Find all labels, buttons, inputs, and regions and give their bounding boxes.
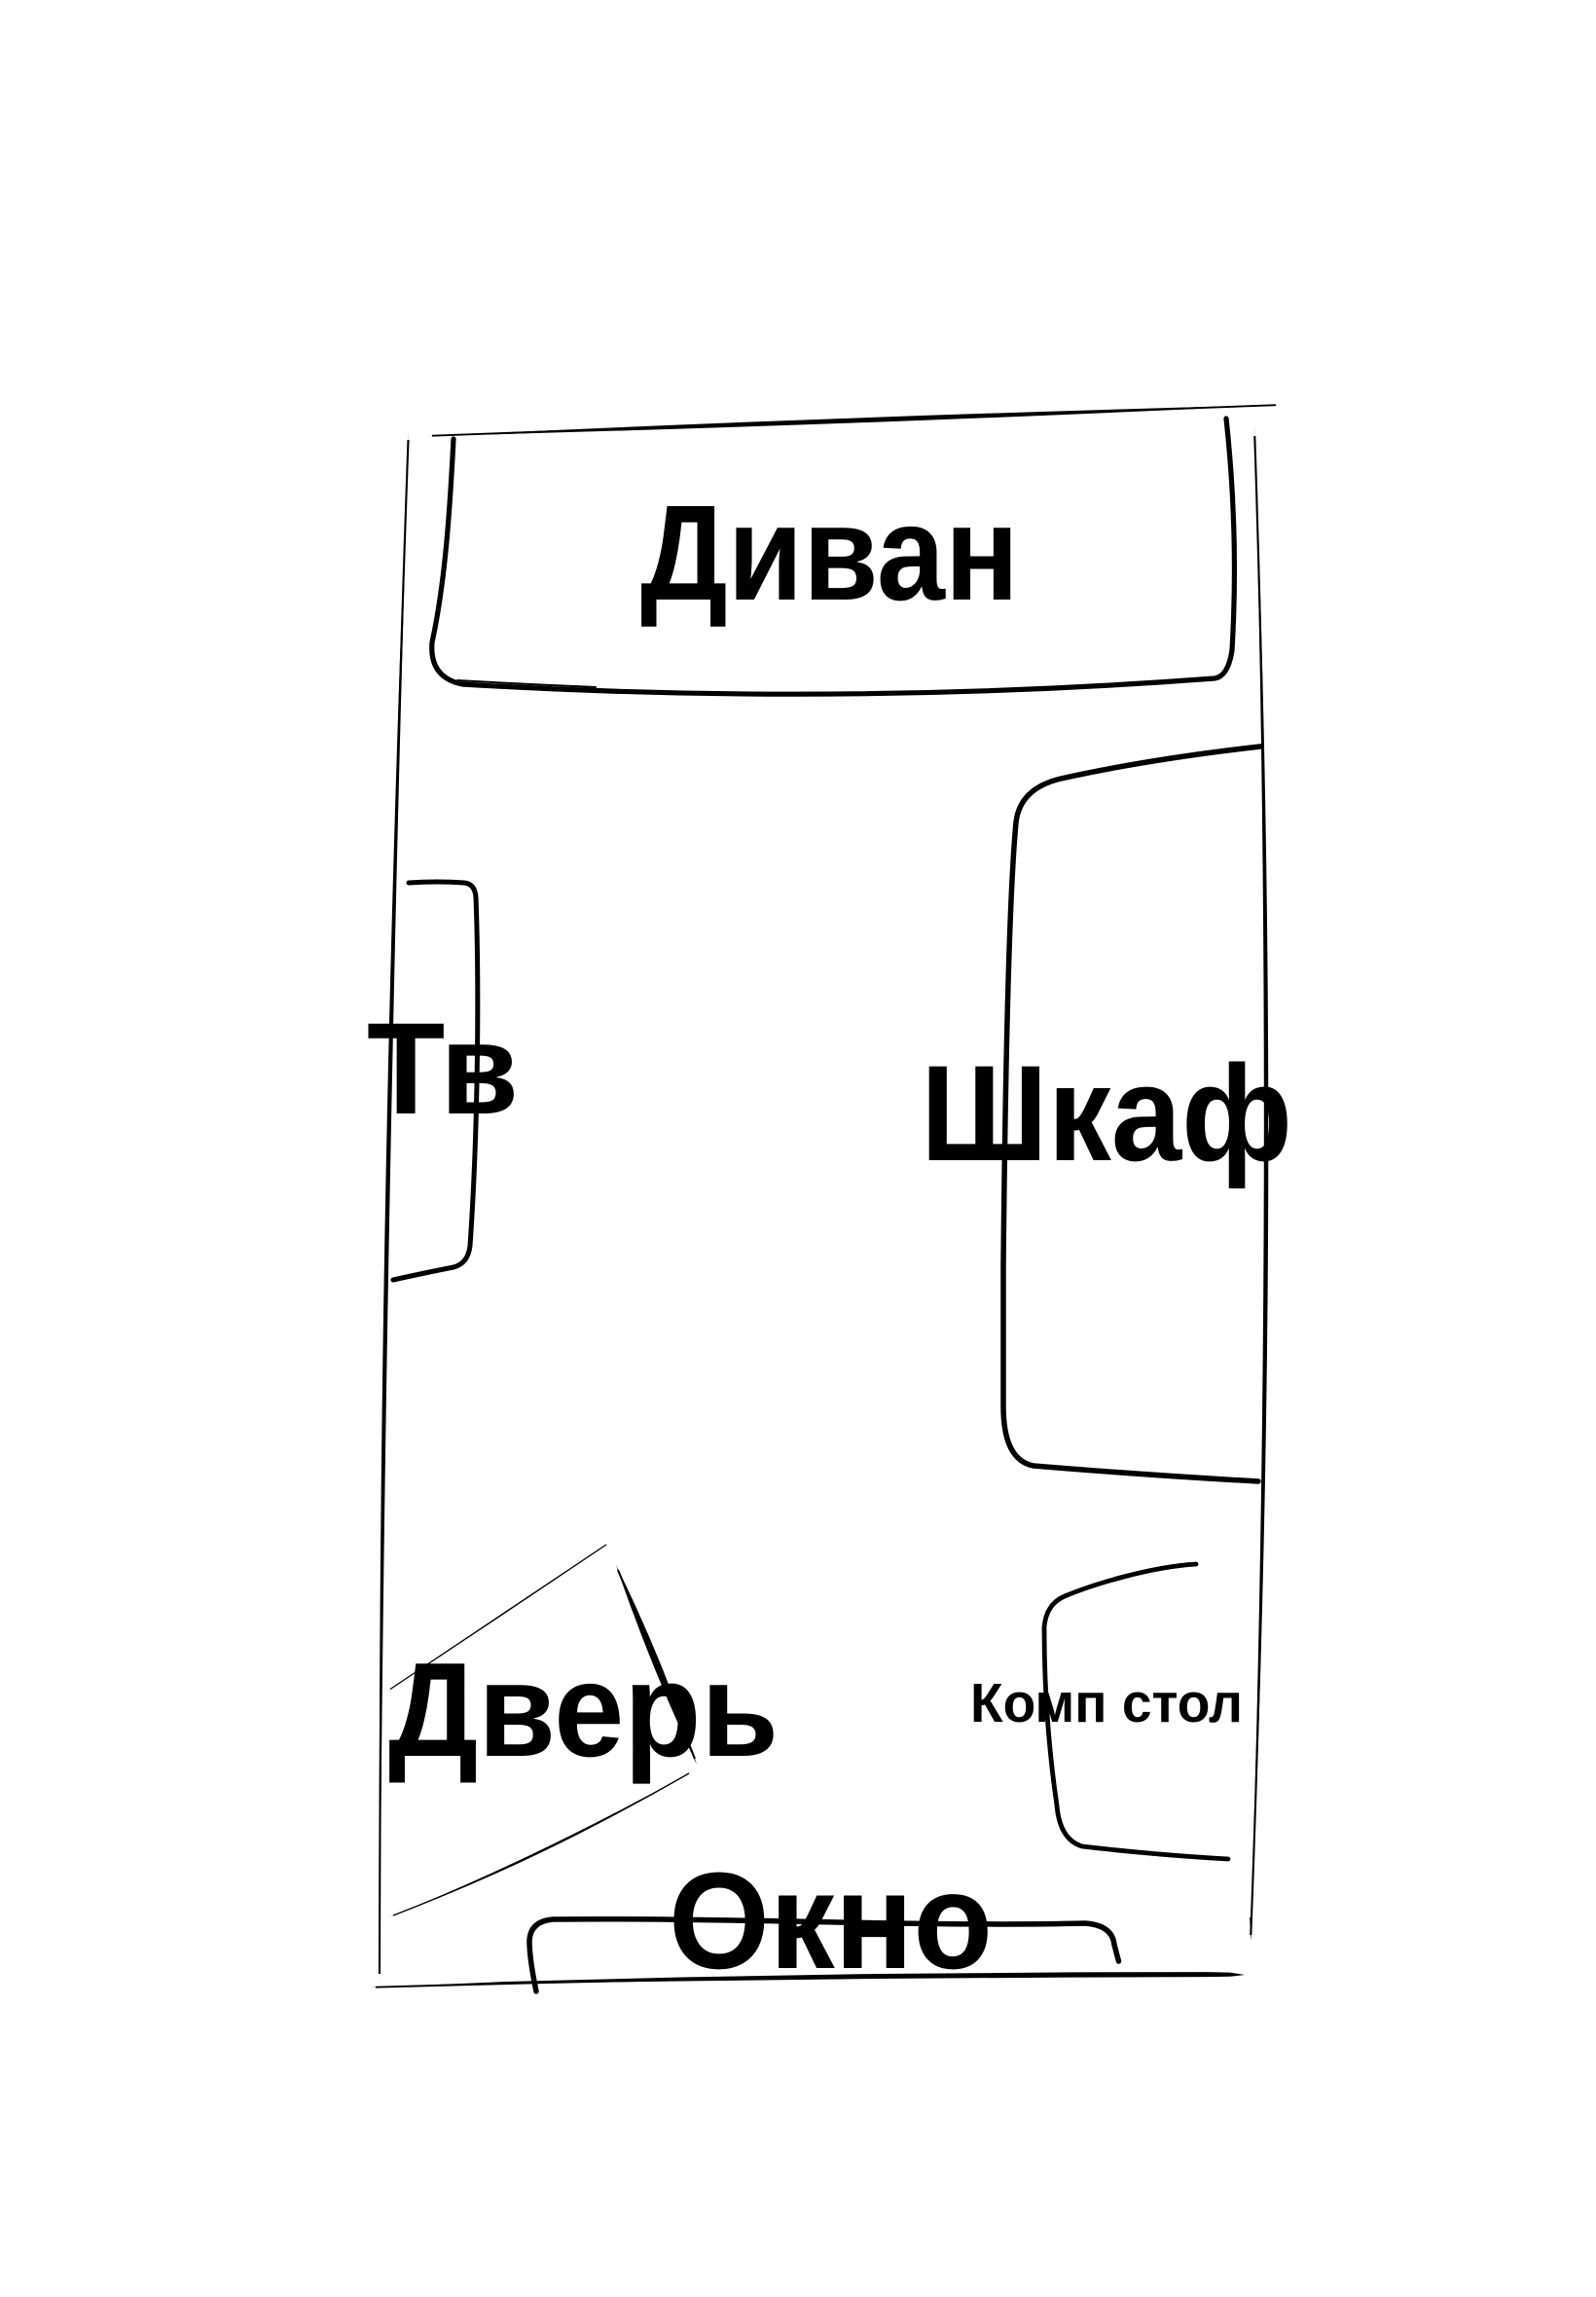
svg-text:Окно: Окно (669, 1843, 993, 1997)
svg-text:Диван: Диван (640, 477, 1019, 629)
svg-text:Комп стол: Комп стол (970, 1672, 1243, 1734)
svg-text:Дверь: Дверь (388, 1635, 779, 1785)
svg-text:Тв: Тв (367, 997, 519, 1142)
svg-text:Шкаф: Шкаф (921, 1037, 1292, 1189)
